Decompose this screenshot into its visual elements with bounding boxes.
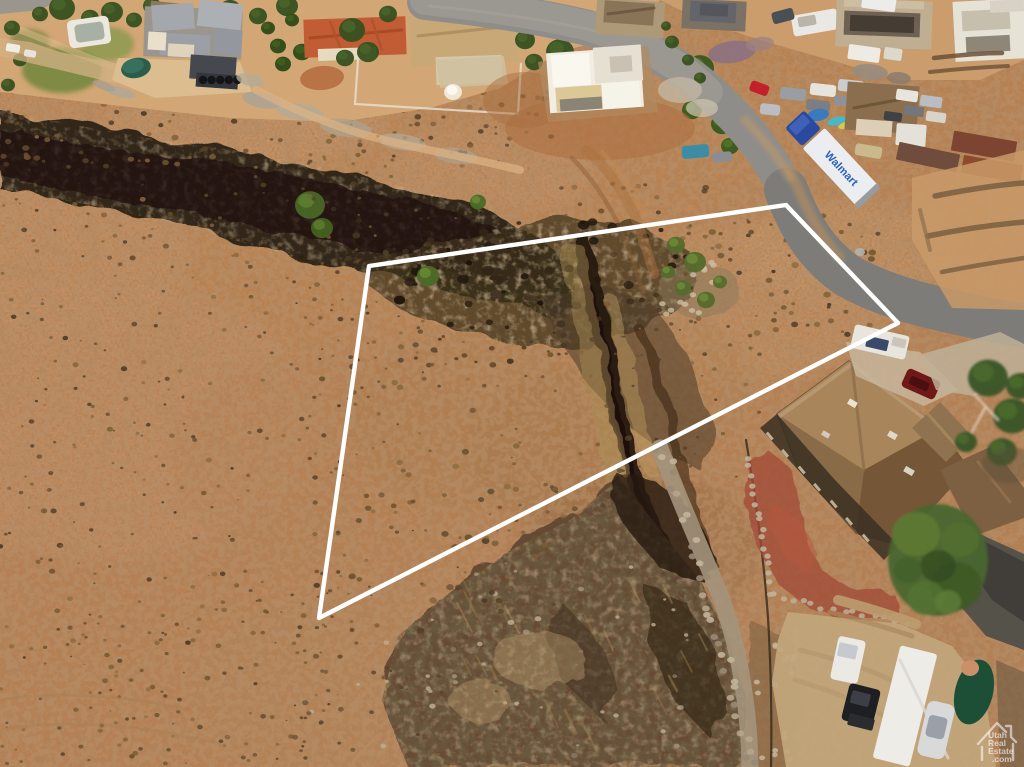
svg-text:.com: .com [992, 754, 1012, 764]
